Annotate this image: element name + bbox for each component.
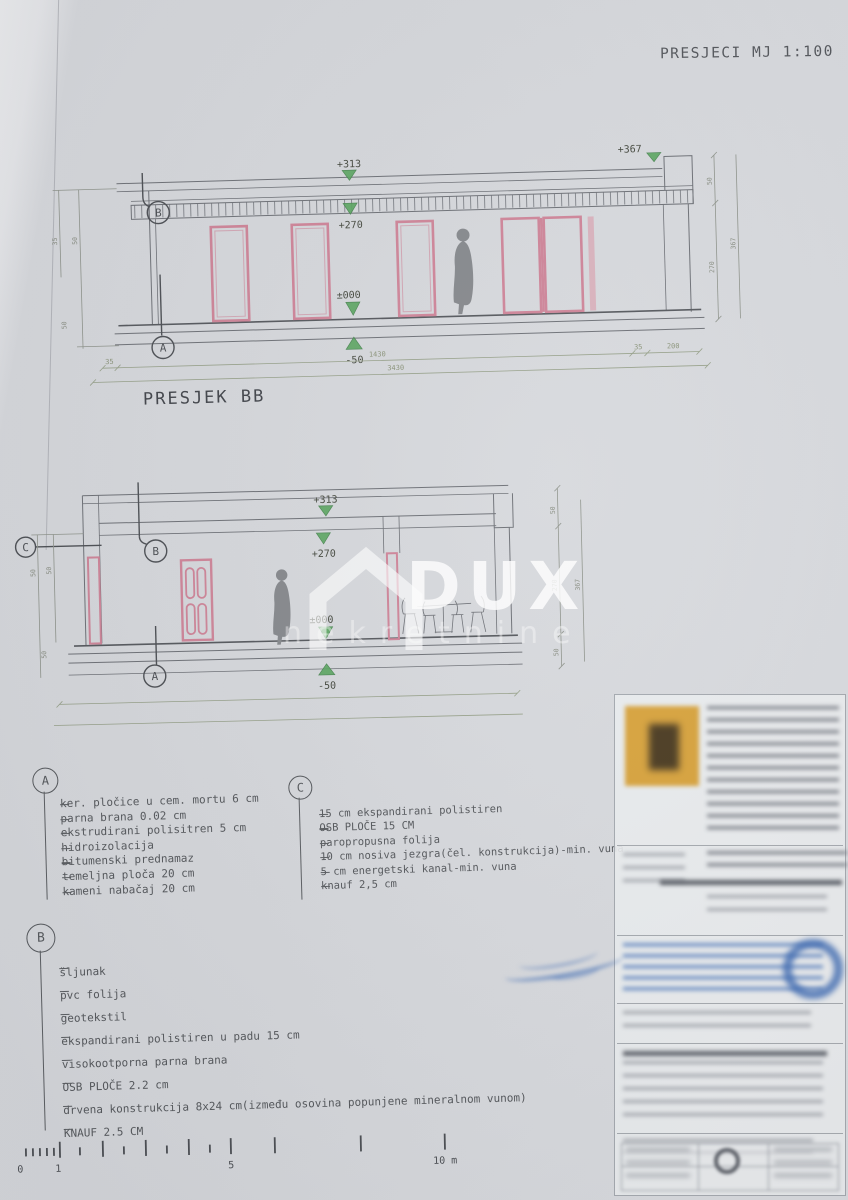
redacted-header-text (707, 706, 839, 838)
title-block (614, 694, 846, 1196)
redacted-rows-2 (623, 1061, 823, 1119)
elev-floor: ±000 (336, 290, 360, 302)
table-stamp-circle (714, 1148, 740, 1174)
scale-label-0: 0 (17, 1165, 23, 1176)
elev-ceiling: +270 (339, 220, 363, 232)
ref-markers-2: C B A (14, 482, 170, 691)
elev-ceiling-2: +270 (312, 549, 336, 561)
roof-slab-2 (82, 485, 513, 537)
elevation-markers-2: +313 +270 ±000 -50 (306, 495, 342, 693)
scanned-drawing-sheet: PRESJECI MJ 1:100 (0, 0, 848, 1200)
redacted-rows-1 (623, 1011, 811, 1037)
section-bb-drawing: B A +313 +270 ±000 -50 +367 50 270 (42, 138, 749, 402)
dim-bottom: 35 1430 35 200 3430 (89, 341, 711, 385)
legend-a-marker: A (32, 767, 59, 794)
elev-roof: +313 (337, 159, 361, 171)
dim-right-2: 50 270 50 367 (548, 485, 584, 670)
redacted-subtitle (707, 895, 827, 919)
section-bb-label: PRESJEK BB (143, 386, 266, 409)
svg-text:50: 50 (45, 567, 53, 575)
marker-a-2: A (151, 670, 158, 683)
marker-c: C (22, 541, 29, 554)
redacted-bold-line (660, 880, 842, 885)
legend-a: A ker. pločice u cem. mortu 6 cm parna b… (32, 760, 316, 908)
svg-text:35: 35 (105, 358, 114, 366)
dim-left-2: 50 50 50 (28, 534, 86, 678)
pink-elements-2 (87, 516, 402, 647)
table-and-chairs (402, 596, 486, 634)
marker-a: A (160, 341, 167, 354)
svg-text:367: 367 (729, 237, 737, 249)
person-silhouette (452, 228, 475, 314)
svg-text:1430: 1430 (369, 350, 386, 358)
elev-roof-2: +313 (313, 495, 337, 507)
legend-b: B šljunak pvc folija geotekstil ekspandi… (26, 909, 552, 1138)
svg-text:35: 35 (634, 343, 643, 351)
elev-below-2: -50 (318, 681, 336, 692)
legend-c-marker: C (288, 775, 313, 800)
svg-text:50: 50 (60, 321, 68, 329)
svg-text:50: 50 (549, 506, 557, 514)
company-logo-glyph (649, 724, 679, 770)
roof-slab (116, 156, 693, 220)
redacted-row-dark (623, 1051, 827, 1056)
legend-b-marker: B (26, 923, 56, 953)
scale-label-5: 5 (228, 1160, 234, 1171)
redacted-field-values (707, 851, 847, 875)
svg-text:50: 50 (40, 651, 48, 659)
sheet-title: PRESJECI MJ 1:100 (660, 44, 834, 62)
svg-text:50: 50 (71, 237, 79, 245)
corner-pink-strip (588, 216, 597, 310)
svg-text:367: 367 (574, 579, 582, 591)
scale-label-10m: 10 m (433, 1155, 457, 1167)
svg-text:3430: 3430 (387, 364, 404, 372)
svg-text:50: 50 (706, 177, 714, 185)
blue-stamp (783, 939, 843, 999)
dim-right: 50 270 367 (705, 151, 741, 322)
revision-table (621, 1143, 839, 1191)
svg-text:50: 50 (552, 648, 560, 656)
legend-c: C 15 cm ekspandirani polistiren OSB PLOČ… (288, 767, 622, 906)
elev-floor-2: ±000 (309, 615, 333, 627)
section-second-drawing: C B A +313 +270 ±000 -50 (12, 469, 628, 734)
walls-floor-2 (64, 485, 522, 675)
scale-label-1: 1 (55, 1164, 61, 1175)
company-logo (625, 706, 699, 786)
marker-b-2: B (152, 545, 159, 558)
dim-left: 35 50 50 (50, 189, 121, 350)
scale-bar: 0 1 5 10 m (8, 1125, 469, 1181)
mid-column (387, 553, 399, 639)
svg-text:35: 35 (51, 237, 59, 245)
svg-text:50: 50 (29, 569, 37, 577)
person-silhouette-2 (272, 569, 292, 645)
svg-text:270: 270 (708, 261, 716, 273)
dim-bottom-2 (53, 690, 522, 725)
door-openings (211, 216, 596, 321)
svg-text:200: 200 (667, 342, 680, 350)
elevation-markers: +313 +270 ±000 -50 +367 (333, 144, 667, 367)
right-beam-block (493, 493, 513, 527)
marker-b: B (155, 206, 162, 219)
svg-text:270: 270 (551, 579, 559, 591)
elev-parapet: +367 (618, 144, 642, 156)
